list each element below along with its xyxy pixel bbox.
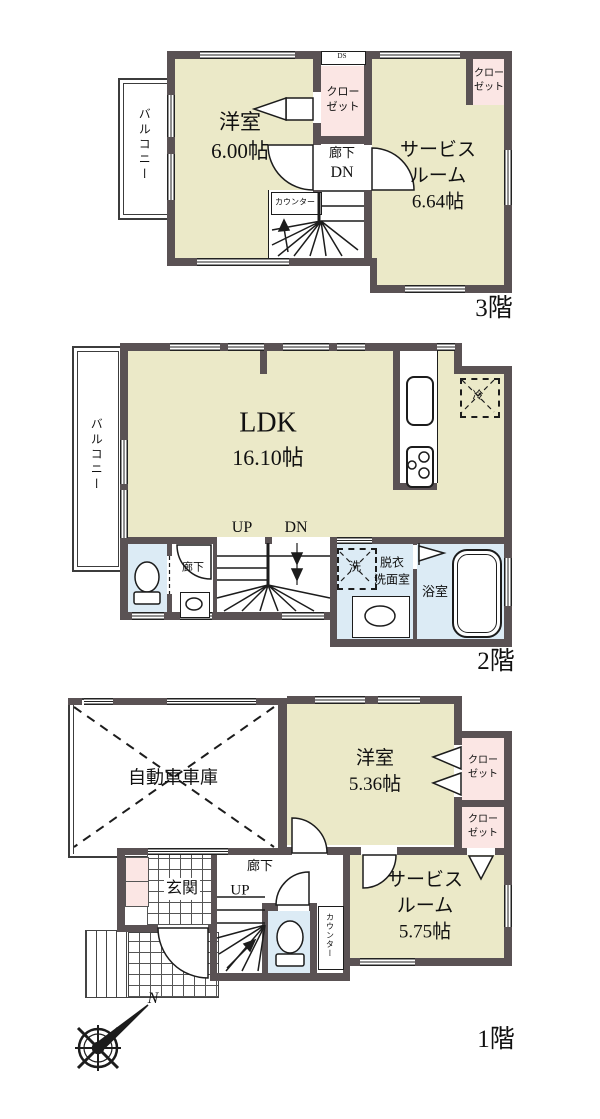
label-closet-tr-3f: クローゼット (474, 67, 504, 95)
label-balcony-3f: バルコニー (136, 107, 153, 187)
hand-basin-bowl-2f (186, 598, 202, 610)
bath-folding-door (419, 543, 444, 565)
label-closet1-1f: クローゼット (468, 754, 498, 782)
label-bath: 浴室 (422, 583, 448, 601)
label-dn-2f: DN (284, 517, 307, 539)
label-counter-1f: カウンター (324, 913, 335, 961)
label-yoshitsu-1f: 洋室5.36帖 (349, 746, 401, 798)
label-closet-mid-3f: クローゼット (327, 85, 360, 115)
label-washer: 洗 (349, 559, 361, 576)
label-ldk-size: 16.10帖 (232, 443, 304, 473)
toilet-fixture-1f (276, 921, 304, 966)
stairs-2f (217, 543, 330, 611)
stairs-1f (217, 897, 265, 971)
label-service-3f: サービスルーム6.64帖 (400, 138, 476, 217)
vanity-bowl-2f (365, 606, 395, 626)
stove-burners (408, 452, 429, 478)
label-yoshitsu-3f: 洋室 6.00帖 (211, 108, 269, 166)
label-fridge: 冷 (473, 388, 484, 403)
floorplan-3story: バルコニー 洋室 6.00帖 クローゼット クローゼット 廊下 DN サービスル… (0, 0, 600, 1119)
door-arc-1f-yoshitsu (292, 818, 327, 853)
toilet-fixture-2f (134, 562, 160, 604)
room-size: 6.00帖 (211, 137, 269, 166)
label-counter-3f: カウンター (275, 196, 315, 207)
label-service-1f: サービスルーム5.75帖 (387, 868, 463, 947)
compass-needle (95, 1005, 149, 1052)
label-datsui: 脱衣洗面室 (374, 554, 410, 587)
label-floor-2f: 2階 (477, 645, 515, 680)
label-hall-1f: 廊下 (247, 857, 273, 875)
label-genkan: 玄関 (164, 878, 200, 900)
label-compass-n: N (148, 988, 159, 1010)
label-floor-3f: 3階 (475, 292, 513, 327)
compass-icon (75, 1005, 148, 1071)
label-ds: DS (338, 52, 347, 62)
room-name: 洋室 (211, 108, 269, 137)
label-dn-3f: DN (330, 162, 353, 184)
label-hall-3f: 廊下 (329, 144, 355, 162)
label-closet2-1f: クローゼット (468, 813, 498, 841)
label-up-1f: UP (230, 881, 249, 902)
label-garage: 自動車車庫 (128, 766, 218, 791)
label-up-2f: UP (232, 517, 252, 539)
label-balcony-2f: バルコニー (88, 417, 105, 497)
label-hall-2f: 廊下 (182, 560, 204, 575)
door-arc-1f-entrance (158, 928, 208, 978)
door-arc-3f-yoshitsu (268, 145, 313, 190)
label-ldk: LDK (239, 405, 297, 444)
label-floor-1f: 1階 (477, 1023, 515, 1058)
lineart-layer (0, 0, 600, 1119)
door-arc-1f-toilet (276, 872, 309, 905)
